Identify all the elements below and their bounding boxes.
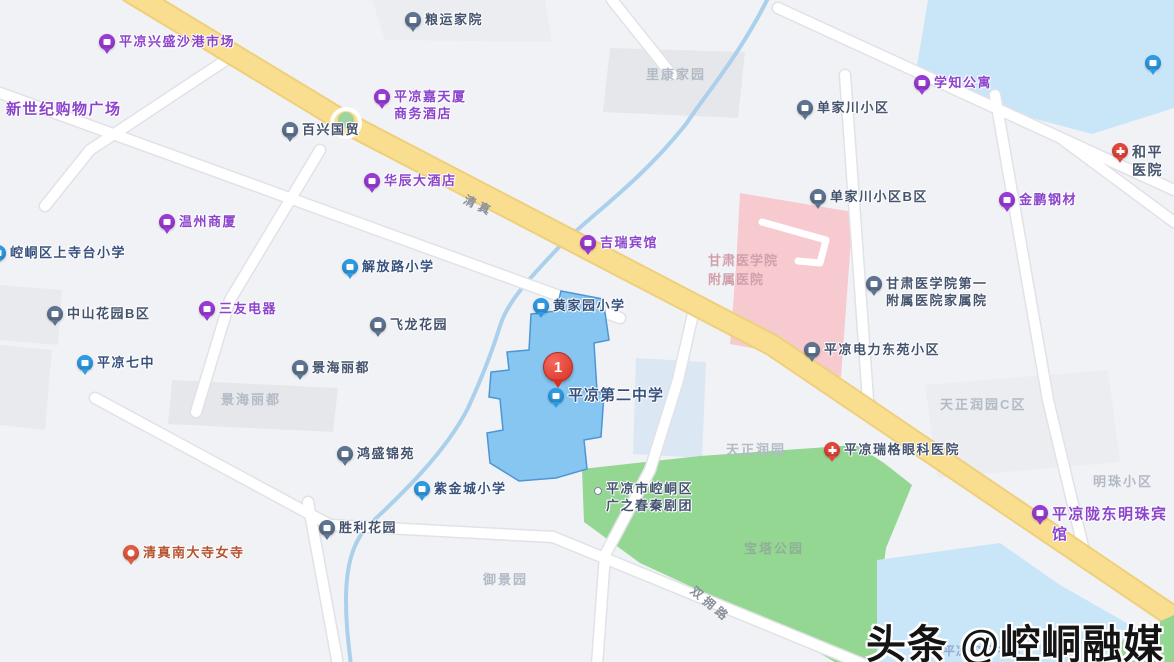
poi-school[interactable]: 崆峒区上寺台小学 (0, 245, 126, 262)
poi-residence[interactable]: 甘肃医学院第一 附属医院家属院 (866, 276, 988, 310)
hotel-pin-icon (364, 173, 380, 189)
residence-pin-icon (810, 189, 826, 205)
poi-theater[interactable]: 平凉市崆峒区 广之春秦剧团 (594, 481, 693, 515)
market-pin-icon (99, 34, 115, 50)
poi-residence[interactable]: 中山花园B区 (47, 306, 150, 323)
area-label: 里康家园 (646, 66, 706, 85)
poi-edge[interactable] (1145, 55, 1161, 71)
shop-pin-icon (199, 301, 215, 317)
residence-pin-icon (319, 520, 335, 536)
hotel-pin-icon (374, 89, 390, 105)
poi-school[interactable]: 紫金城小学 (414, 481, 507, 498)
store-pin-icon (999, 192, 1015, 208)
poi-commercial[interactable]: 温州商厦 (159, 214, 237, 231)
poi-eye-hospital[interactable]: 平凉瑞格眼科医院 (824, 442, 960, 459)
residence-pin-icon (292, 360, 308, 376)
poi-residence[interactable]: 景海丽都 (292, 360, 370, 377)
school-pin-icon (342, 259, 358, 275)
poi-residence[interactable]: 粮运家院 (405, 12, 483, 29)
hotel-pin-icon (580, 235, 596, 251)
poi-store[interactable]: 金鹏钢材 (999, 192, 1077, 209)
hospital-pin-icon (824, 442, 840, 458)
school-pin-icon (533, 298, 549, 314)
area-label-hospital: 甘肃医学院 附属医院 (708, 252, 778, 290)
map-base-layer (0, 0, 1174, 662)
area-label: 天正润园 (726, 441, 786, 460)
poi-mosque[interactable]: 清真南大寺女寺 (123, 545, 245, 562)
mosque-pin-icon (123, 545, 139, 561)
poi-selected-school[interactable]: 平凉第二中学 (548, 388, 664, 406)
school-pin-icon (77, 355, 93, 371)
area-label: 御景园 (483, 571, 528, 590)
poi-school[interactable]: 解放路小学 (342, 259, 435, 276)
poi-hotel[interactable]: 吉瑞宾馆 (580, 235, 658, 252)
building-pin-icon (282, 122, 298, 138)
poi-residence[interactable]: 平凉电力东苑小区 (804, 342, 940, 359)
building-pin-icon (159, 214, 175, 230)
block (0, 345, 52, 430)
search-result-marker-1[interactable]: 1 (543, 352, 573, 382)
hotel-pin-icon (1032, 505, 1048, 521)
map-canvas[interactable]: 里康家园 景海丽都 天正润园C区 天正润园 明珠小区 宝塔公园 御景园 甘肃医学… (0, 0, 1174, 662)
residence-pin-icon (866, 276, 882, 292)
apartment-pin-icon (914, 75, 930, 91)
poi-school[interactable]: 黄家园小学 (533, 298, 626, 315)
poi-school[interactable]: 平凉七中 (77, 355, 155, 372)
residence-pin-icon (797, 100, 813, 116)
area-label: 景海丽都 (221, 391, 281, 410)
area-label-park: 宝塔公园 (744, 540, 804, 559)
poi-hospital[interactable]: 和平医院 (1112, 143, 1174, 179)
school-pin-icon (1145, 55, 1161, 71)
residence-pin-icon (370, 317, 386, 333)
poi-apartment[interactable]: 学知公寓 (914, 75, 992, 92)
poi-hotel[interactable]: 平凉嘉天厦 商务酒店 (374, 89, 467, 123)
hospital-pin-icon (1112, 143, 1128, 159)
poi-trade-center[interactable]: 百兴国贸 (282, 122, 360, 139)
residence-pin-icon (405, 12, 421, 28)
poi-mall[interactable]: 新世纪购物广场 (6, 100, 122, 120)
small-place-dot-icon (594, 487, 602, 495)
poi-market[interactable]: 平凉兴盛沙港市场 (99, 34, 235, 51)
area-label: 天正润园C区 (940, 396, 1026, 415)
lake-northeast (916, 0, 1174, 134)
poi-residence[interactable]: 单家川小区 (797, 100, 890, 117)
poi-residence[interactable]: 飞龙花园 (370, 317, 448, 334)
residence-pin-icon (337, 446, 353, 462)
residence-pin-icon (47, 306, 63, 322)
watermark: 头条 @崆峒融媒 (866, 612, 1164, 662)
school-pin-icon (0, 245, 6, 261)
residence-pin-icon (804, 342, 820, 358)
poi-electronics[interactable]: 三友电器 (199, 301, 277, 318)
poi-residence[interactable]: 胜利花园 (319, 520, 397, 537)
poi-residence[interactable]: 单家川小区B区 (810, 189, 928, 206)
school-pin-icon (414, 481, 430, 497)
poi-hotel[interactable]: 华辰大酒店 (364, 173, 457, 190)
area-label: 明珠小区 (1093, 473, 1153, 492)
poi-residence[interactable]: 鸿盛锦苑 (337, 446, 415, 463)
poi-hotel[interactable]: 平凉陇东明珠宾馆 (1032, 505, 1174, 544)
